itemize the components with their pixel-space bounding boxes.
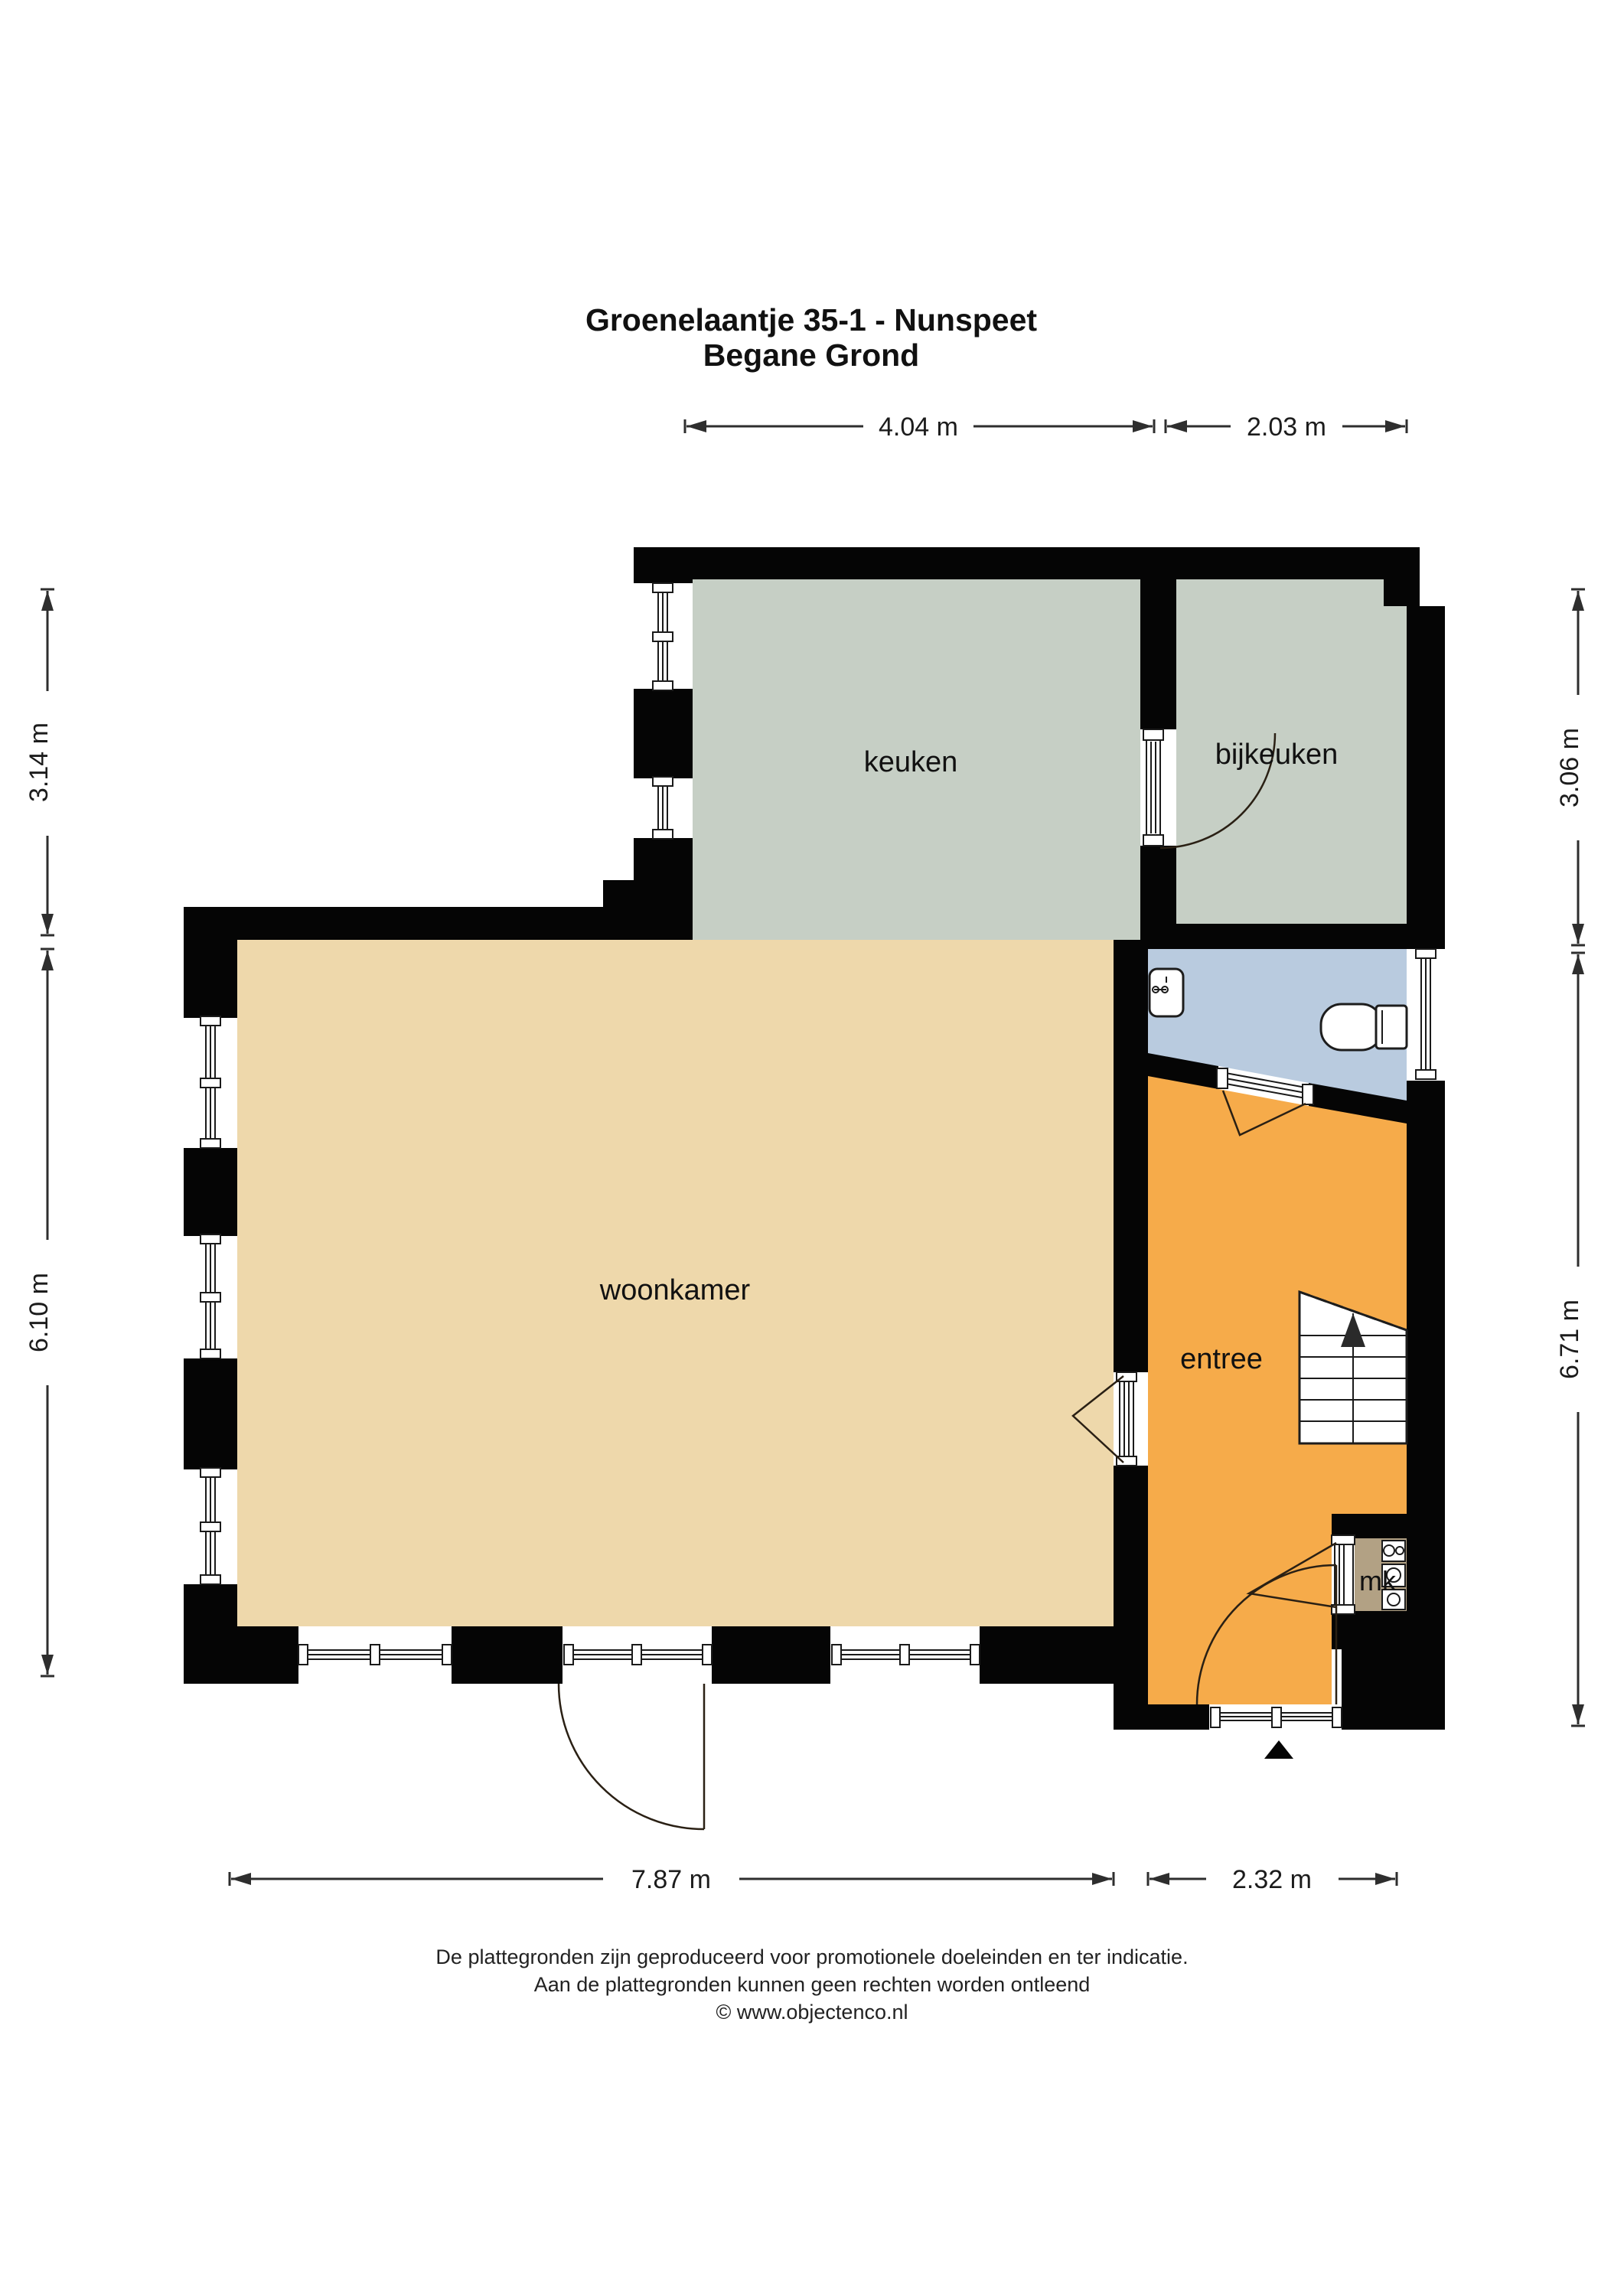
dim-bottom-left: 7.87 m [631,1865,711,1894]
window [298,1645,452,1665]
disclaimer-line2: Aan de plattegronden kunnen geen rechten… [534,1973,1091,1996]
terrace-door-swing [559,1684,704,1829]
label-woonkamer: woonkamer [599,1274,751,1306]
dim-right-lower: 6.71 m [1555,1300,1584,1379]
window [201,1234,220,1358]
terrace-door [559,1645,712,1829]
label-bijkeuken: bijkeuken [1215,739,1339,771]
title-line1: Groenelaantje 35-1 - Nunspeet [585,302,1037,338]
window [201,1016,220,1148]
entrance-arrow-icon [1264,1740,1293,1759]
toilet-icon [1321,1004,1407,1050]
window [653,777,673,839]
dim-bottom-right: 2.32 m [1232,1865,1312,1894]
dim-top-left: 4.04 m [879,413,958,442]
floorplan-canvas: keuken bijkeuken woonkamer entree mk 4.0… [0,0,1624,2296]
label-mk: mk [1359,1565,1397,1596]
disclaimer: De plattegronden zijn geproduceerd voor … [435,1945,1188,2024]
disclaimer-line1: De plattegronden zijn geproduceerd voor … [435,1945,1188,1968]
title-line2: Begane Grond [703,338,919,373]
window [1416,949,1436,1079]
dim-left-lower: 6.10 m [24,1273,54,1352]
dim-left-upper: 3.14 m [24,722,54,802]
plan-title: Groenelaantje 35-1 - Nunspeet Begane Gro… [585,302,1037,373]
dim-top-right: 2.03 m [1247,413,1326,442]
window [201,1468,220,1584]
label-entree: entree [1180,1343,1263,1375]
label-keuken: keuken [864,746,958,778]
floorplan-page: keuken bijkeuken woonkamer entree mk 4.0… [0,0,1624,2296]
dim-right-upper: 3.06 m [1555,728,1584,807]
window [832,1645,980,1665]
window [653,583,673,690]
disclaimer-line3: © www.objectenco.nl [716,2001,908,2024]
